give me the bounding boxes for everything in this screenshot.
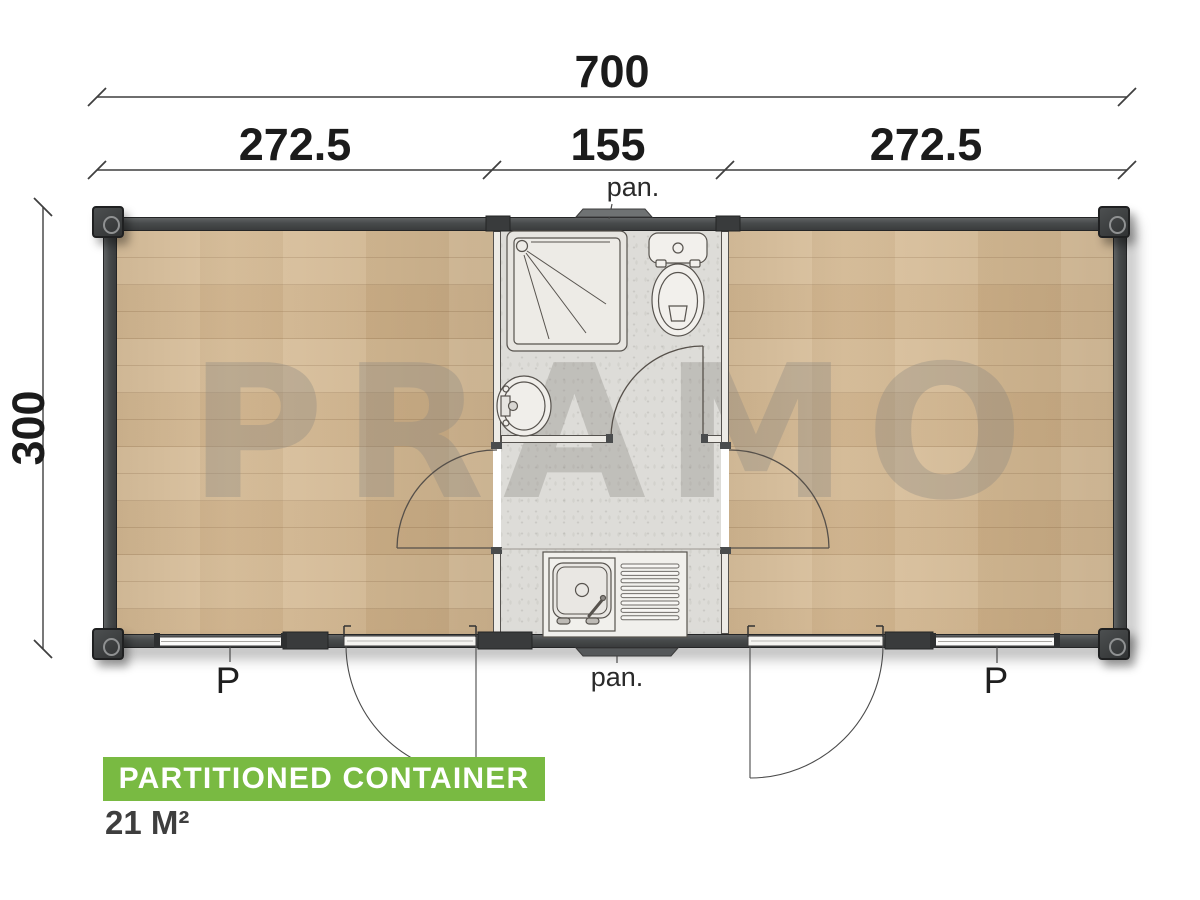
plan-title-banner: PARTITIONED CONTAINER (103, 757, 545, 801)
panel-bottom-symbol (576, 648, 678, 656)
bathroom-door-symbol (606, 346, 708, 443)
entry-door-right-symbol (748, 626, 883, 778)
plan-area-label: 21 M² (105, 804, 189, 842)
window-right-symbol (930, 633, 1060, 648)
toilet-symbol (649, 233, 707, 336)
panel-top-symbol (576, 209, 652, 217)
entry-door-left-symbol (344, 626, 476, 775)
washbasin-symbol (497, 376, 551, 436)
right-room-door-symbol (720, 442, 829, 554)
panel-top-label: pan. (607, 172, 660, 203)
shower-symbol (507, 231, 627, 351)
floor-plan-canvas: PRAMO (0, 0, 1200, 900)
left-room-door-symbol (397, 442, 502, 554)
dim-depth: 300 (3, 383, 55, 473)
panel-bottom-label: pan. (591, 662, 644, 693)
dim-left-room: 272.5 (239, 119, 352, 171)
dim-total-width: 700 (574, 46, 649, 98)
dim-core: 155 (570, 119, 645, 171)
window-left-symbol (154, 633, 287, 648)
window-left-label: P (216, 660, 241, 702)
kitchen-sink-symbol (543, 552, 687, 637)
dim-right-room: 272.5 (870, 119, 983, 171)
window-right-label: P (984, 660, 1009, 702)
